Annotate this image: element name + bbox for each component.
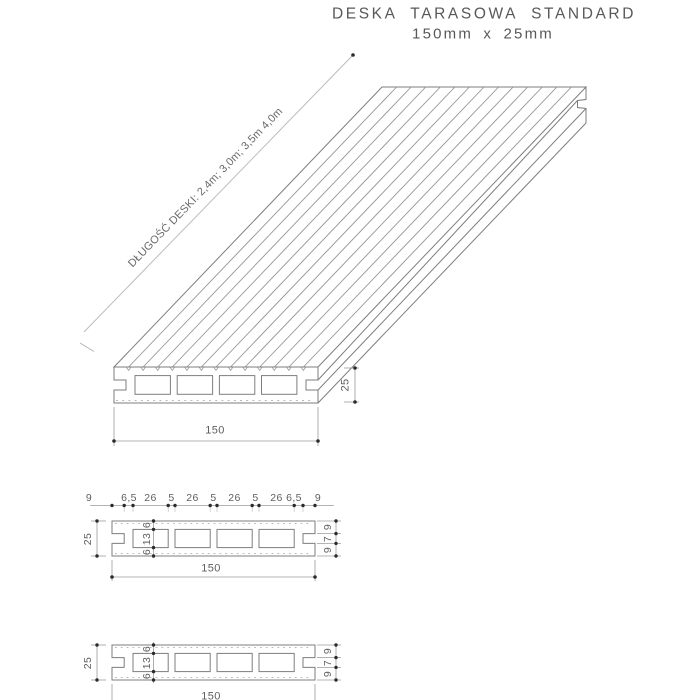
sec1-right-chain-label-1: 7 bbox=[322, 535, 333, 541]
sec1-chain-label-6: 26 bbox=[228, 493, 240, 504]
sec1-chain-label-2: 26 bbox=[144, 493, 156, 504]
side-face-lines bbox=[318, 87, 586, 403]
top-face-groove-lines bbox=[129, 87, 572, 367]
leader-end-dot bbox=[351, 53, 355, 57]
sec1-chain-label-5: 5 bbox=[210, 493, 216, 504]
drawing-linework bbox=[0, 0, 700, 700]
iso-thickness-dim-label: 25 bbox=[341, 378, 352, 391]
sec1-chain-label-8: 26 bbox=[270, 493, 282, 504]
page: DESKA TARASOWA STANDARD 150mm x 25mm DŁU… bbox=[0, 0, 700, 700]
sec1-chain-label-4: 26 bbox=[186, 493, 198, 504]
sec1-chain-label-9: 6,5 bbox=[286, 493, 302, 504]
dim-dot bbox=[353, 366, 357, 370]
front-edge-groove-notches bbox=[126, 367, 305, 370]
sec1-chain-label-1: 6,5 bbox=[121, 493, 137, 504]
dim-dot bbox=[316, 439, 320, 443]
section-chambers bbox=[133, 653, 294, 671]
drawing-subtitle: 150mm x 25mm bbox=[412, 27, 554, 42]
sec1-right-chain-label-2: 9 bbox=[322, 547, 333, 553]
sec2-left-dim-label: 25 bbox=[83, 656, 94, 668]
sec2-inner-chain-label-2: 6 bbox=[141, 673, 152, 679]
sec1-right-chain-label-0: 9 bbox=[322, 524, 333, 530]
isometric-view bbox=[80, 53, 586, 446]
sec2-bottom-dim-label: 150 bbox=[201, 692, 221, 700]
drawing-title: DESKA TARASOWA STANDARD bbox=[332, 6, 636, 22]
iso-width-dim-label: 150 bbox=[205, 426, 225, 437]
section-chambers bbox=[133, 529, 294, 547]
sec1-chain-label-0: 9 bbox=[86, 493, 92, 504]
sec1-chain-label-3: 5 bbox=[168, 493, 174, 504]
sec1-bottom-dim-label: 150 bbox=[201, 563, 221, 574]
sec1-inner-chain-label-2: 6 bbox=[141, 549, 152, 555]
board-front-face bbox=[114, 367, 318, 403]
sec2-inner-chain-label-1: 13 bbox=[141, 656, 152, 668]
sec1-inner-chain-label-1: 13 bbox=[141, 532, 152, 544]
sec2-right-chain-label-2: 9 bbox=[322, 671, 333, 677]
sec2-right-chain-label-1: 7 bbox=[322, 659, 333, 665]
sec1-chain-label-7: 5 bbox=[252, 493, 258, 504]
top-dimension-chain bbox=[90, 504, 334, 512]
sec2-inner-chain-label-0: 6 bbox=[141, 646, 152, 652]
sec2-right-chain-label-0: 9 bbox=[322, 648, 333, 654]
length-note-leader-line bbox=[84, 55, 353, 332]
sec1-inner-chain-label-0: 6 bbox=[141, 522, 152, 528]
sec1-left-dim-label: 25 bbox=[83, 532, 94, 544]
dim-dot bbox=[112, 439, 116, 443]
sec1-chain-label-10: 9 bbox=[315, 493, 321, 504]
dim-dot bbox=[353, 400, 357, 404]
front-face-chambers bbox=[135, 376, 297, 395]
leader-tick bbox=[80, 343, 94, 352]
